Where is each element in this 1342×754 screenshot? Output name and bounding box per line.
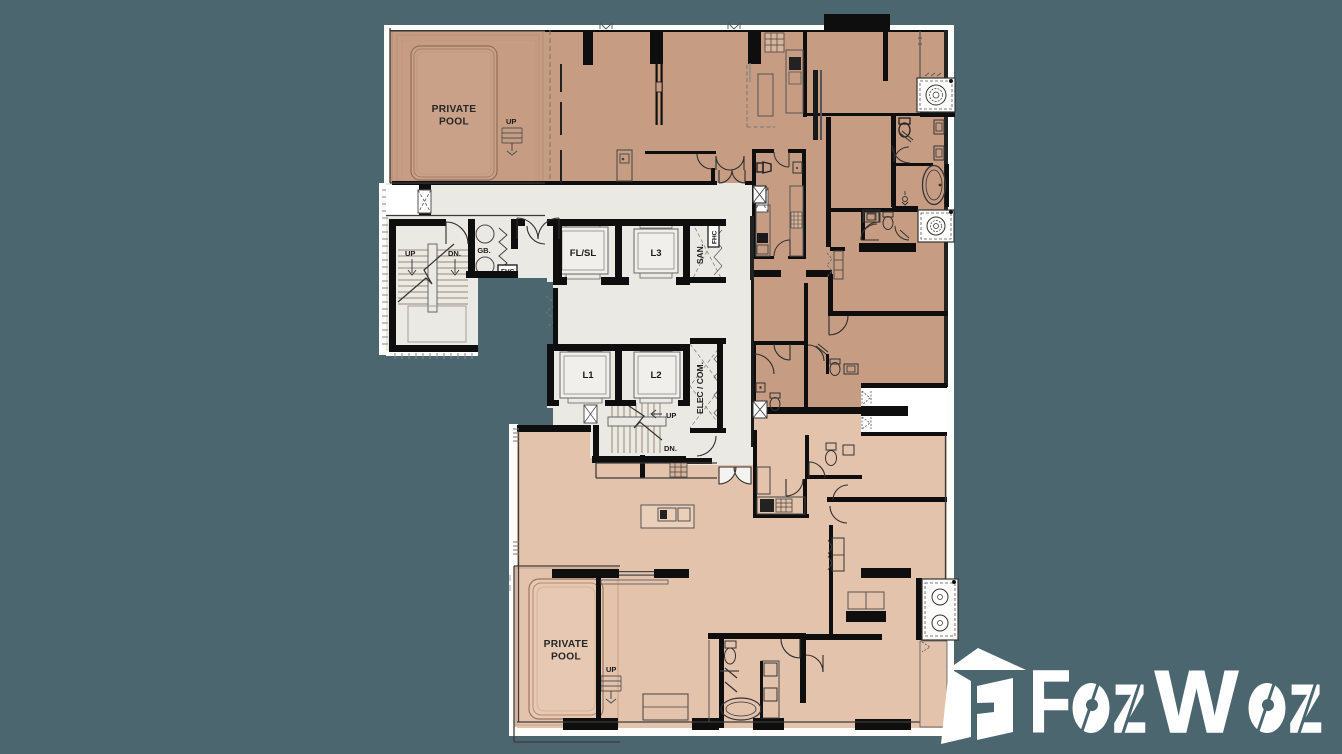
svg-text:DN.: DN.	[448, 249, 461, 258]
svg-text:POOL: POOL	[439, 117, 469, 128]
svg-text:UP: UP	[506, 117, 516, 126]
svg-text:F: F	[1029, 653, 1071, 751]
svg-text:W: W	[1155, 652, 1238, 751]
svg-text:L3: L3	[650, 248, 661, 259]
svg-text:PRIVATE: PRIVATE	[544, 639, 589, 650]
svg-text:GB.: GB.	[477, 246, 490, 255]
svg-text:UP: UP	[666, 411, 676, 420]
svg-text:POOL: POOL	[551, 652, 581, 663]
svg-text:PRIVATE: PRIVATE	[432, 104, 477, 115]
svg-text:z: z	[1112, 652, 1147, 750]
svg-text:UP: UP	[606, 665, 616, 674]
svg-text:DN.: DN.	[664, 444, 677, 453]
svg-text:SAN.: SAN.	[695, 244, 705, 264]
svg-text:FL/SL: FL/SL	[570, 248, 597, 259]
svg-text:L2: L2	[650, 370, 661, 381]
svg-text:FHC: FHC	[712, 230, 719, 244]
svg-text:z: z	[1288, 652, 1323, 750]
svg-text:UP: UP	[405, 249, 415, 258]
svg-text:L1: L1	[582, 370, 594, 381]
svg-text:ELEC / COM.: ELEC / COM.	[695, 362, 705, 414]
